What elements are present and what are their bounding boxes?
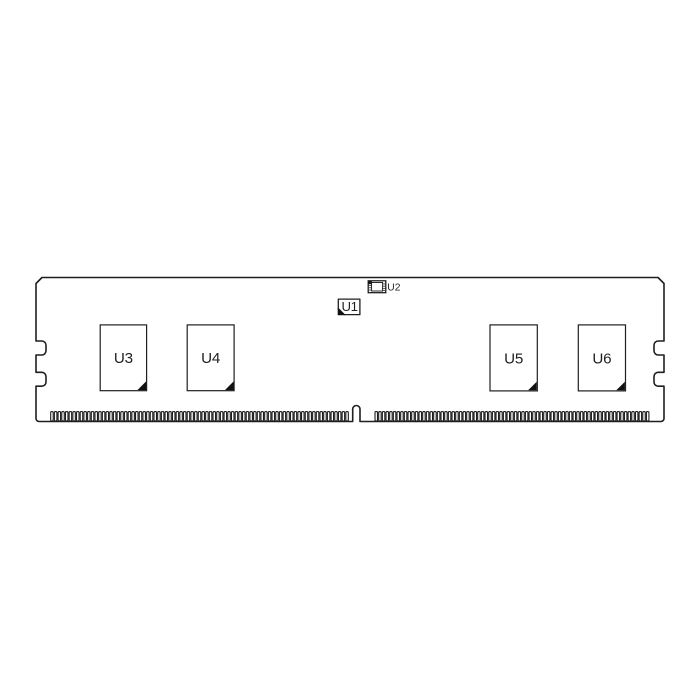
svg-text:U4: U4 <box>201 350 220 367</box>
svg-text:U6: U6 <box>592 350 611 367</box>
svg-text:U2: U2 <box>387 283 400 294</box>
svg-text:U5: U5 <box>504 350 523 367</box>
svg-text:U1: U1 <box>341 299 357 314</box>
svg-text:U3: U3 <box>114 350 133 367</box>
